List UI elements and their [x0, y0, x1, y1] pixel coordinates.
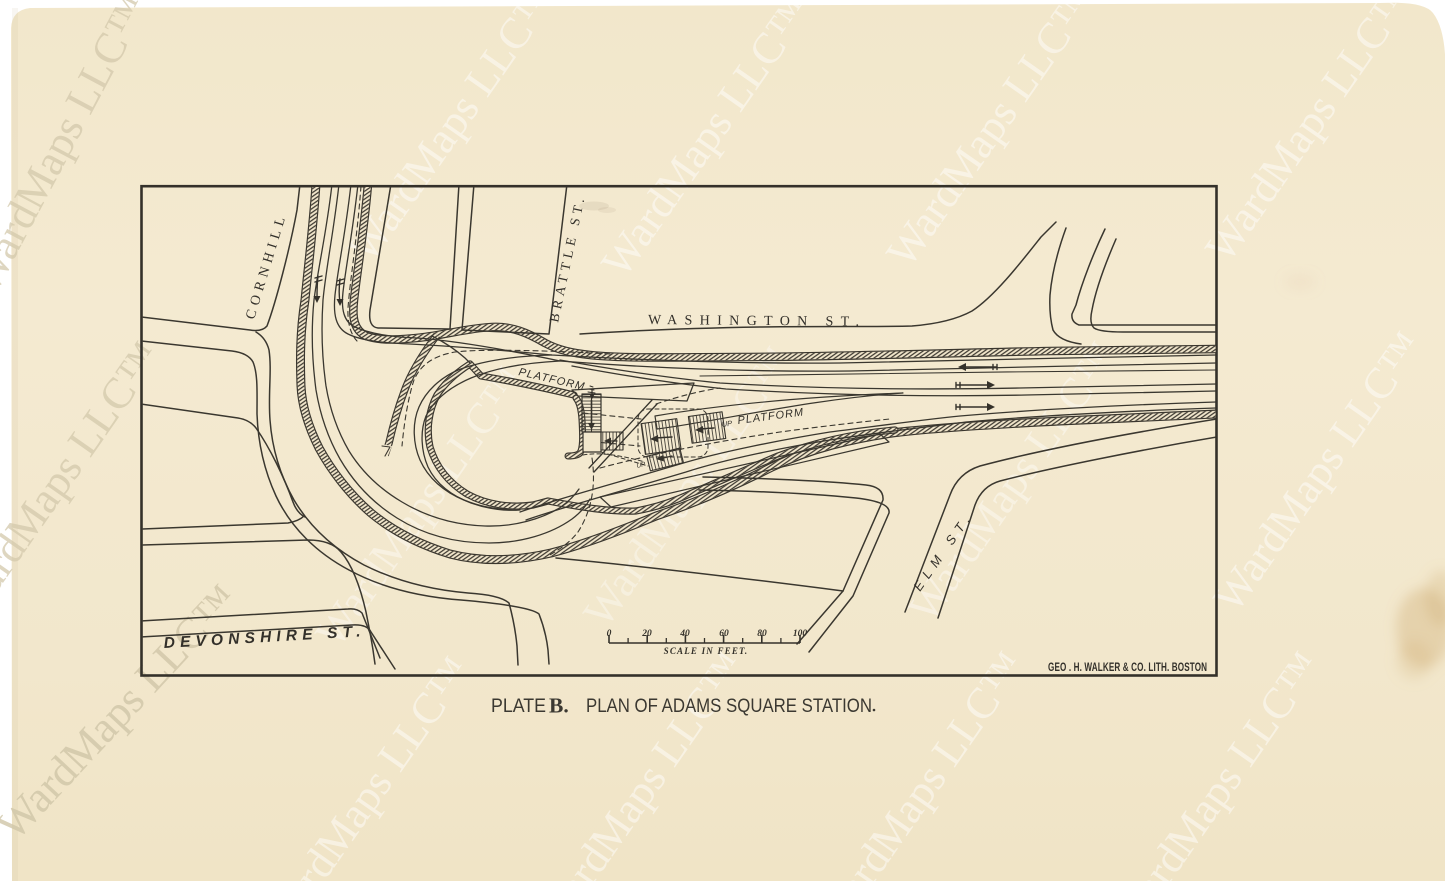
svg-text:40: 40 [679, 629, 690, 639]
svg-text:80: 80 [757, 629, 767, 639]
svg-text:PLAN OF ADAMS SQUARE STATION: PLAN OF ADAMS SQUARE STATION [586, 696, 872, 717]
svg-text:0: 0 [607, 629, 612, 639]
svg-text:UP: UP [721, 419, 733, 429]
svg-text:100: 100 [793, 629, 808, 639]
svg-text:SCALE IN FEET.: SCALE IN FEET. [664, 646, 749, 656]
svg-text:PLATE: PLATE [491, 696, 546, 717]
svg-text:20: 20 [641, 629, 652, 639]
svg-text:B.: B. [549, 694, 569, 718]
svg-text:60: 60 [719, 629, 729, 639]
svg-text:GEO . H. WALKER & CO. LITH. BO: GEO . H. WALKER & CO. LITH. BOSTON [1048, 662, 1207, 675]
